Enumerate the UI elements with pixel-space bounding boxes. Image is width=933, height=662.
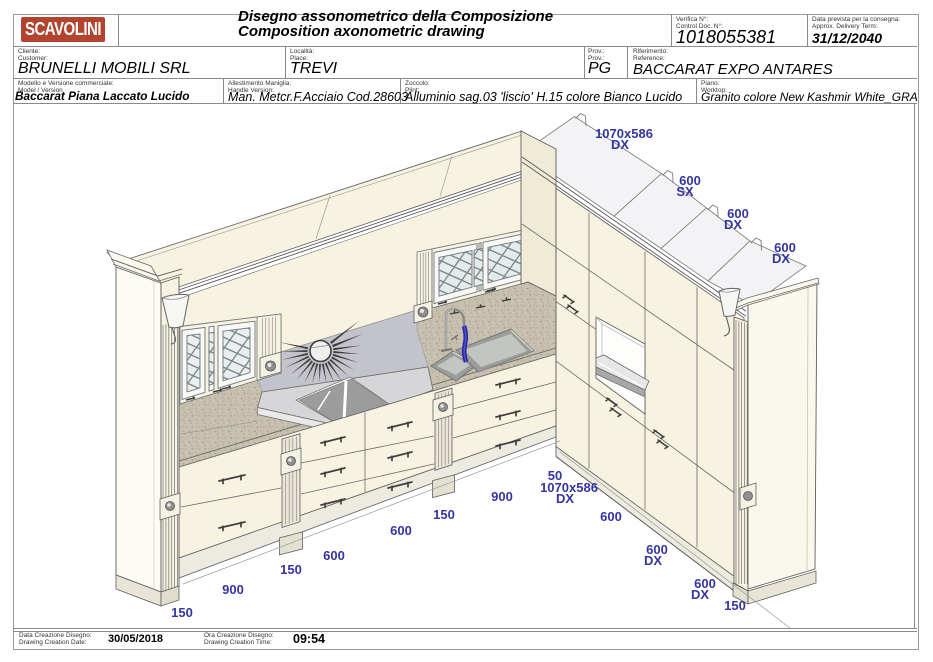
svg-text:DX: DX [556, 491, 574, 506]
svg-text:900: 900 [491, 489, 513, 504]
svg-text:150: 150 [171, 605, 193, 620]
svg-text:150: 150 [280, 562, 302, 577]
svg-text:600: 600 [600, 509, 622, 524]
svg-text:900: 900 [222, 582, 244, 597]
svg-text:SX: SX [676, 184, 694, 199]
svg-text:DX: DX [611, 137, 629, 152]
svg-text:150: 150 [433, 507, 455, 522]
svg-text:DX: DX [724, 217, 742, 232]
svg-text:150: 150 [724, 598, 746, 613]
svg-text:DX: DX [644, 553, 662, 568]
svg-text:DX: DX [691, 587, 709, 602]
svg-text:600: 600 [390, 523, 412, 538]
svg-text:600: 600 [323, 548, 345, 563]
svg-text:DX: DX [772, 251, 790, 266]
